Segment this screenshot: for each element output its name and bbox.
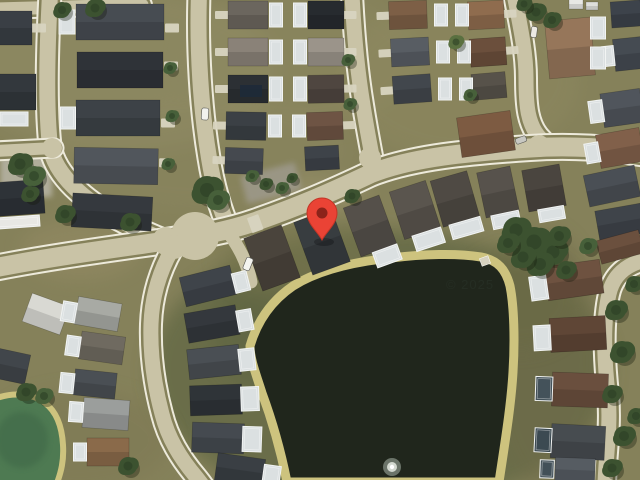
car — [201, 108, 209, 120]
roof-shade — [470, 51, 507, 67]
tree-core — [126, 218, 135, 227]
tree-core — [22, 388, 31, 397]
tree-core — [40, 392, 48, 400]
house — [59, 4, 179, 40]
roof-shade — [308, 15, 344, 29]
roof-shade — [76, 22, 164, 40]
roof-shade — [77, 70, 163, 88]
pool-cage-unit — [437, 41, 450, 63]
tree-core — [26, 190, 34, 198]
roof-shade — [586, 6, 598, 10]
roof-shade — [0, 92, 36, 110]
house — [586, 2, 598, 10]
road-junction — [528, 135, 550, 157]
pool-cage-unit — [294, 3, 307, 27]
driveway — [503, 9, 516, 18]
roof-shade — [228, 52, 268, 66]
tree-core — [58, 6, 66, 14]
tree-core — [124, 462, 133, 471]
driveway — [378, 49, 391, 58]
tree-core — [554, 231, 564, 241]
road-junction — [42, 138, 62, 158]
roof-shade — [190, 399, 242, 416]
roof-shade — [308, 52, 344, 66]
house — [304, 145, 339, 171]
roof-shade — [569, 4, 583, 9]
pool-cage-unit — [591, 17, 606, 39]
pool-cage-unit — [269, 115, 282, 137]
driveway — [342, 121, 355, 129]
tree-core — [608, 390, 617, 399]
tree-core — [61, 210, 70, 219]
pin-shadow — [314, 238, 334, 246]
house — [61, 100, 176, 136]
roof-shade — [76, 118, 160, 136]
tree-core — [632, 412, 640, 420]
map-copyright: © 2025 — [446, 277, 494, 292]
roof-shade — [551, 389, 608, 408]
roof-shade — [308, 89, 344, 104]
tree-core — [169, 113, 175, 119]
roof-shade — [393, 88, 432, 105]
roof-shade — [614, 53, 640, 72]
driveway — [505, 46, 519, 55]
road-junction — [359, 147, 381, 169]
driveway — [344, 11, 357, 19]
roof-shade — [550, 333, 607, 353]
tree-core — [347, 101, 353, 107]
pool-cage-unit — [270, 3, 283, 27]
tree-core — [619, 431, 629, 441]
roof-shade — [228, 15, 268, 29]
driveway — [215, 48, 229, 56]
driveway — [215, 85, 229, 93]
driveway — [30, 24, 46, 33]
pool-cage — [236, 309, 254, 332]
pool-cage-unit — [294, 40, 307, 64]
roof-shade — [611, 13, 640, 28]
fountain-core — [390, 465, 394, 469]
tree-core — [15, 159, 26, 170]
road-junction — [162, 235, 186, 259]
tree-core — [518, 252, 529, 263]
tree-core — [562, 266, 571, 275]
tree-core — [630, 280, 638, 288]
tree-core — [29, 171, 39, 181]
tree-core — [467, 92, 473, 98]
pool-cage-unit — [456, 4, 469, 26]
roof-shade — [391, 51, 430, 67]
roof-shade — [305, 157, 340, 171]
pool-cage-unit — [435, 4, 448, 26]
tree-core — [521, 1, 528, 8]
tree-core — [91, 4, 100, 13]
driveway — [165, 24, 179, 33]
car — [530, 26, 537, 38]
house — [189, 384, 259, 416]
pool-cage — [65, 335, 82, 357]
roof-shade — [307, 125, 343, 140]
house — [77, 52, 178, 88]
tree-core — [165, 161, 171, 167]
driveway — [212, 156, 225, 164]
driveway — [376, 12, 389, 20]
driveway — [215, 11, 229, 19]
solar-panel — [240, 85, 262, 97]
tree-core — [263, 181, 269, 187]
pool-cage-unit — [293, 115, 306, 137]
tree-core — [290, 176, 295, 181]
tree-core — [548, 16, 556, 24]
tree-core — [453, 39, 460, 46]
house — [540, 457, 596, 480]
roof-shade — [74, 165, 158, 184]
driveway — [343, 84, 356, 92]
tree-core — [611, 305, 621, 315]
tree-core — [279, 185, 285, 191]
driveway — [380, 86, 394, 95]
roof-shade — [191, 437, 243, 454]
pool-cage-unit — [270, 40, 283, 64]
pool-cage — [60, 301, 77, 323]
tree-core — [617, 347, 628, 358]
pool-cage-unit — [270, 77, 283, 101]
tree-core — [345, 57, 351, 63]
pool-cage-unit — [591, 47, 606, 69]
pool-cage — [584, 142, 601, 164]
roof-shade — [82, 412, 129, 430]
tree-core — [249, 173, 255, 179]
pin-dot — [317, 208, 328, 219]
pool-cage-unit — [294, 77, 307, 101]
tree-core — [349, 193, 356, 200]
house — [569, 0, 583, 9]
roof-shade — [555, 469, 595, 480]
roof-shade — [468, 14, 505, 30]
house — [610, 0, 640, 28]
house — [456, 110, 515, 157]
map-viewport: © 2025 — [0, 0, 640, 480]
roof-shade — [0, 28, 32, 45]
house — [191, 422, 262, 454]
roof-shade — [547, 46, 595, 79]
tree-core — [213, 195, 223, 205]
driveway — [213, 121, 227, 129]
tree-core — [503, 238, 513, 248]
pool-cage-unit — [439, 78, 452, 100]
tree-core — [608, 464, 617, 473]
satellite-map[interactable]: © 2025 — [0, 0, 640, 480]
roof-shade — [389, 14, 427, 29]
roof-shade — [226, 126, 266, 141]
tree-core — [167, 65, 173, 71]
tree-core — [584, 242, 592, 250]
